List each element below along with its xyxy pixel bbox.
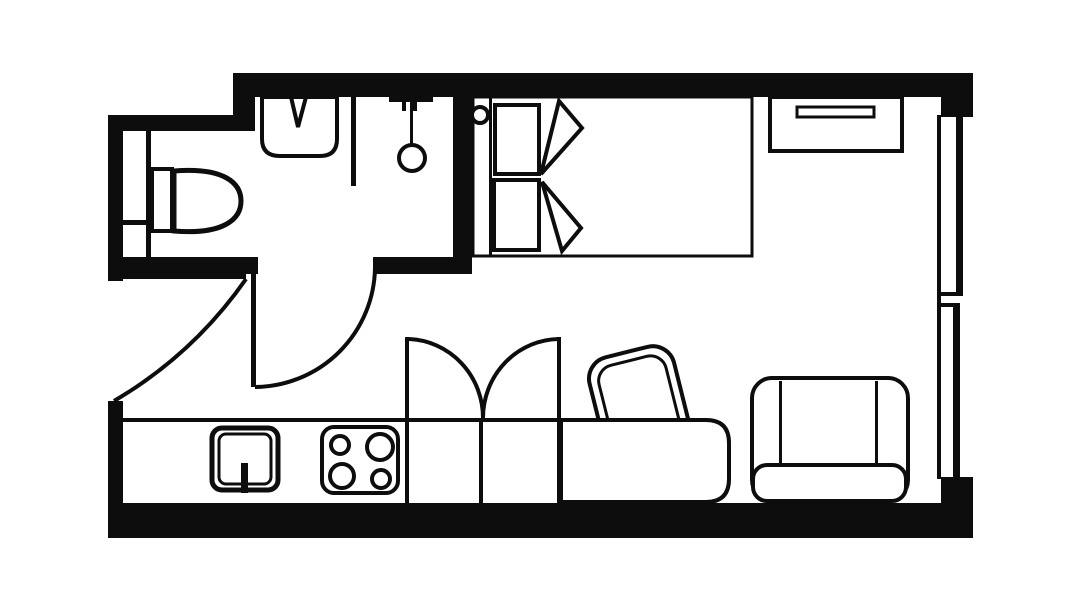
window-mullion-tick-lower <box>937 303 960 307</box>
wardrobe-center-divider <box>479 420 483 503</box>
pillow-top <box>495 105 539 174</box>
wardrobe-right-door-leaf <box>557 337 561 420</box>
window-outer-line-upper <box>956 115 963 296</box>
wall-bathroom-right <box>453 97 472 274</box>
floor-plan-drawing <box>0 0 1092 614</box>
entry-door-leaf <box>120 274 246 279</box>
bed <box>472 97 752 256</box>
shower-head-icon <box>399 145 425 171</box>
wall-bathroom-top <box>108 115 255 131</box>
window-mullion-tick-upper <box>937 292 963 296</box>
wardrobe-left-door-swing-arc <box>409 339 483 418</box>
armchair-arm-left <box>779 381 782 466</box>
wardrobe-left-door-leaf <box>405 337 409 420</box>
wardrobe-side-left <box>405 420 409 503</box>
wall-top <box>235 73 973 97</box>
window-inner-line <box>937 115 941 479</box>
service-duct-divider <box>123 220 151 225</box>
shower-rail <box>389 97 433 102</box>
kitchen-tap-icon <box>241 463 248 493</box>
window-outer-line-lower <box>953 306 960 479</box>
armchair <box>752 378 908 501</box>
headboard-line <box>489 97 492 256</box>
wall-bottom <box>108 503 973 538</box>
kitchenette <box>112 418 562 493</box>
wall-left-upper <box>108 115 123 281</box>
shelf-unit <box>770 97 902 151</box>
wall-light-icon <box>472 107 488 123</box>
armchair-arm-right <box>875 381 878 466</box>
armchair-seat-cushion <box>753 465 906 501</box>
wall-window-column-bottom <box>941 477 973 538</box>
wardrobe-right-door-swing-arc <box>483 339 559 418</box>
shower-hose <box>410 102 413 146</box>
wall-window-column-top <box>941 73 973 117</box>
counter-front-edge <box>112 418 562 422</box>
desk <box>561 420 729 502</box>
entry-door-swing-arc <box>114 279 246 401</box>
bathroom-door-leaf <box>251 272 256 387</box>
wall-bathroom-bottom-left <box>108 257 258 274</box>
shelf-unit-outline <box>770 97 902 151</box>
shower-partition-wall <box>351 97 356 186</box>
toilet-bowl <box>174 170 241 231</box>
pillow-bottom <box>494 180 539 250</box>
window <box>937 115 963 479</box>
doors <box>114 268 375 401</box>
bathroom-door-swing-arc <box>255 268 375 387</box>
floor-plan-canvas <box>0 0 1092 614</box>
desk-area <box>561 342 729 502</box>
toilet-cistern <box>152 169 172 231</box>
